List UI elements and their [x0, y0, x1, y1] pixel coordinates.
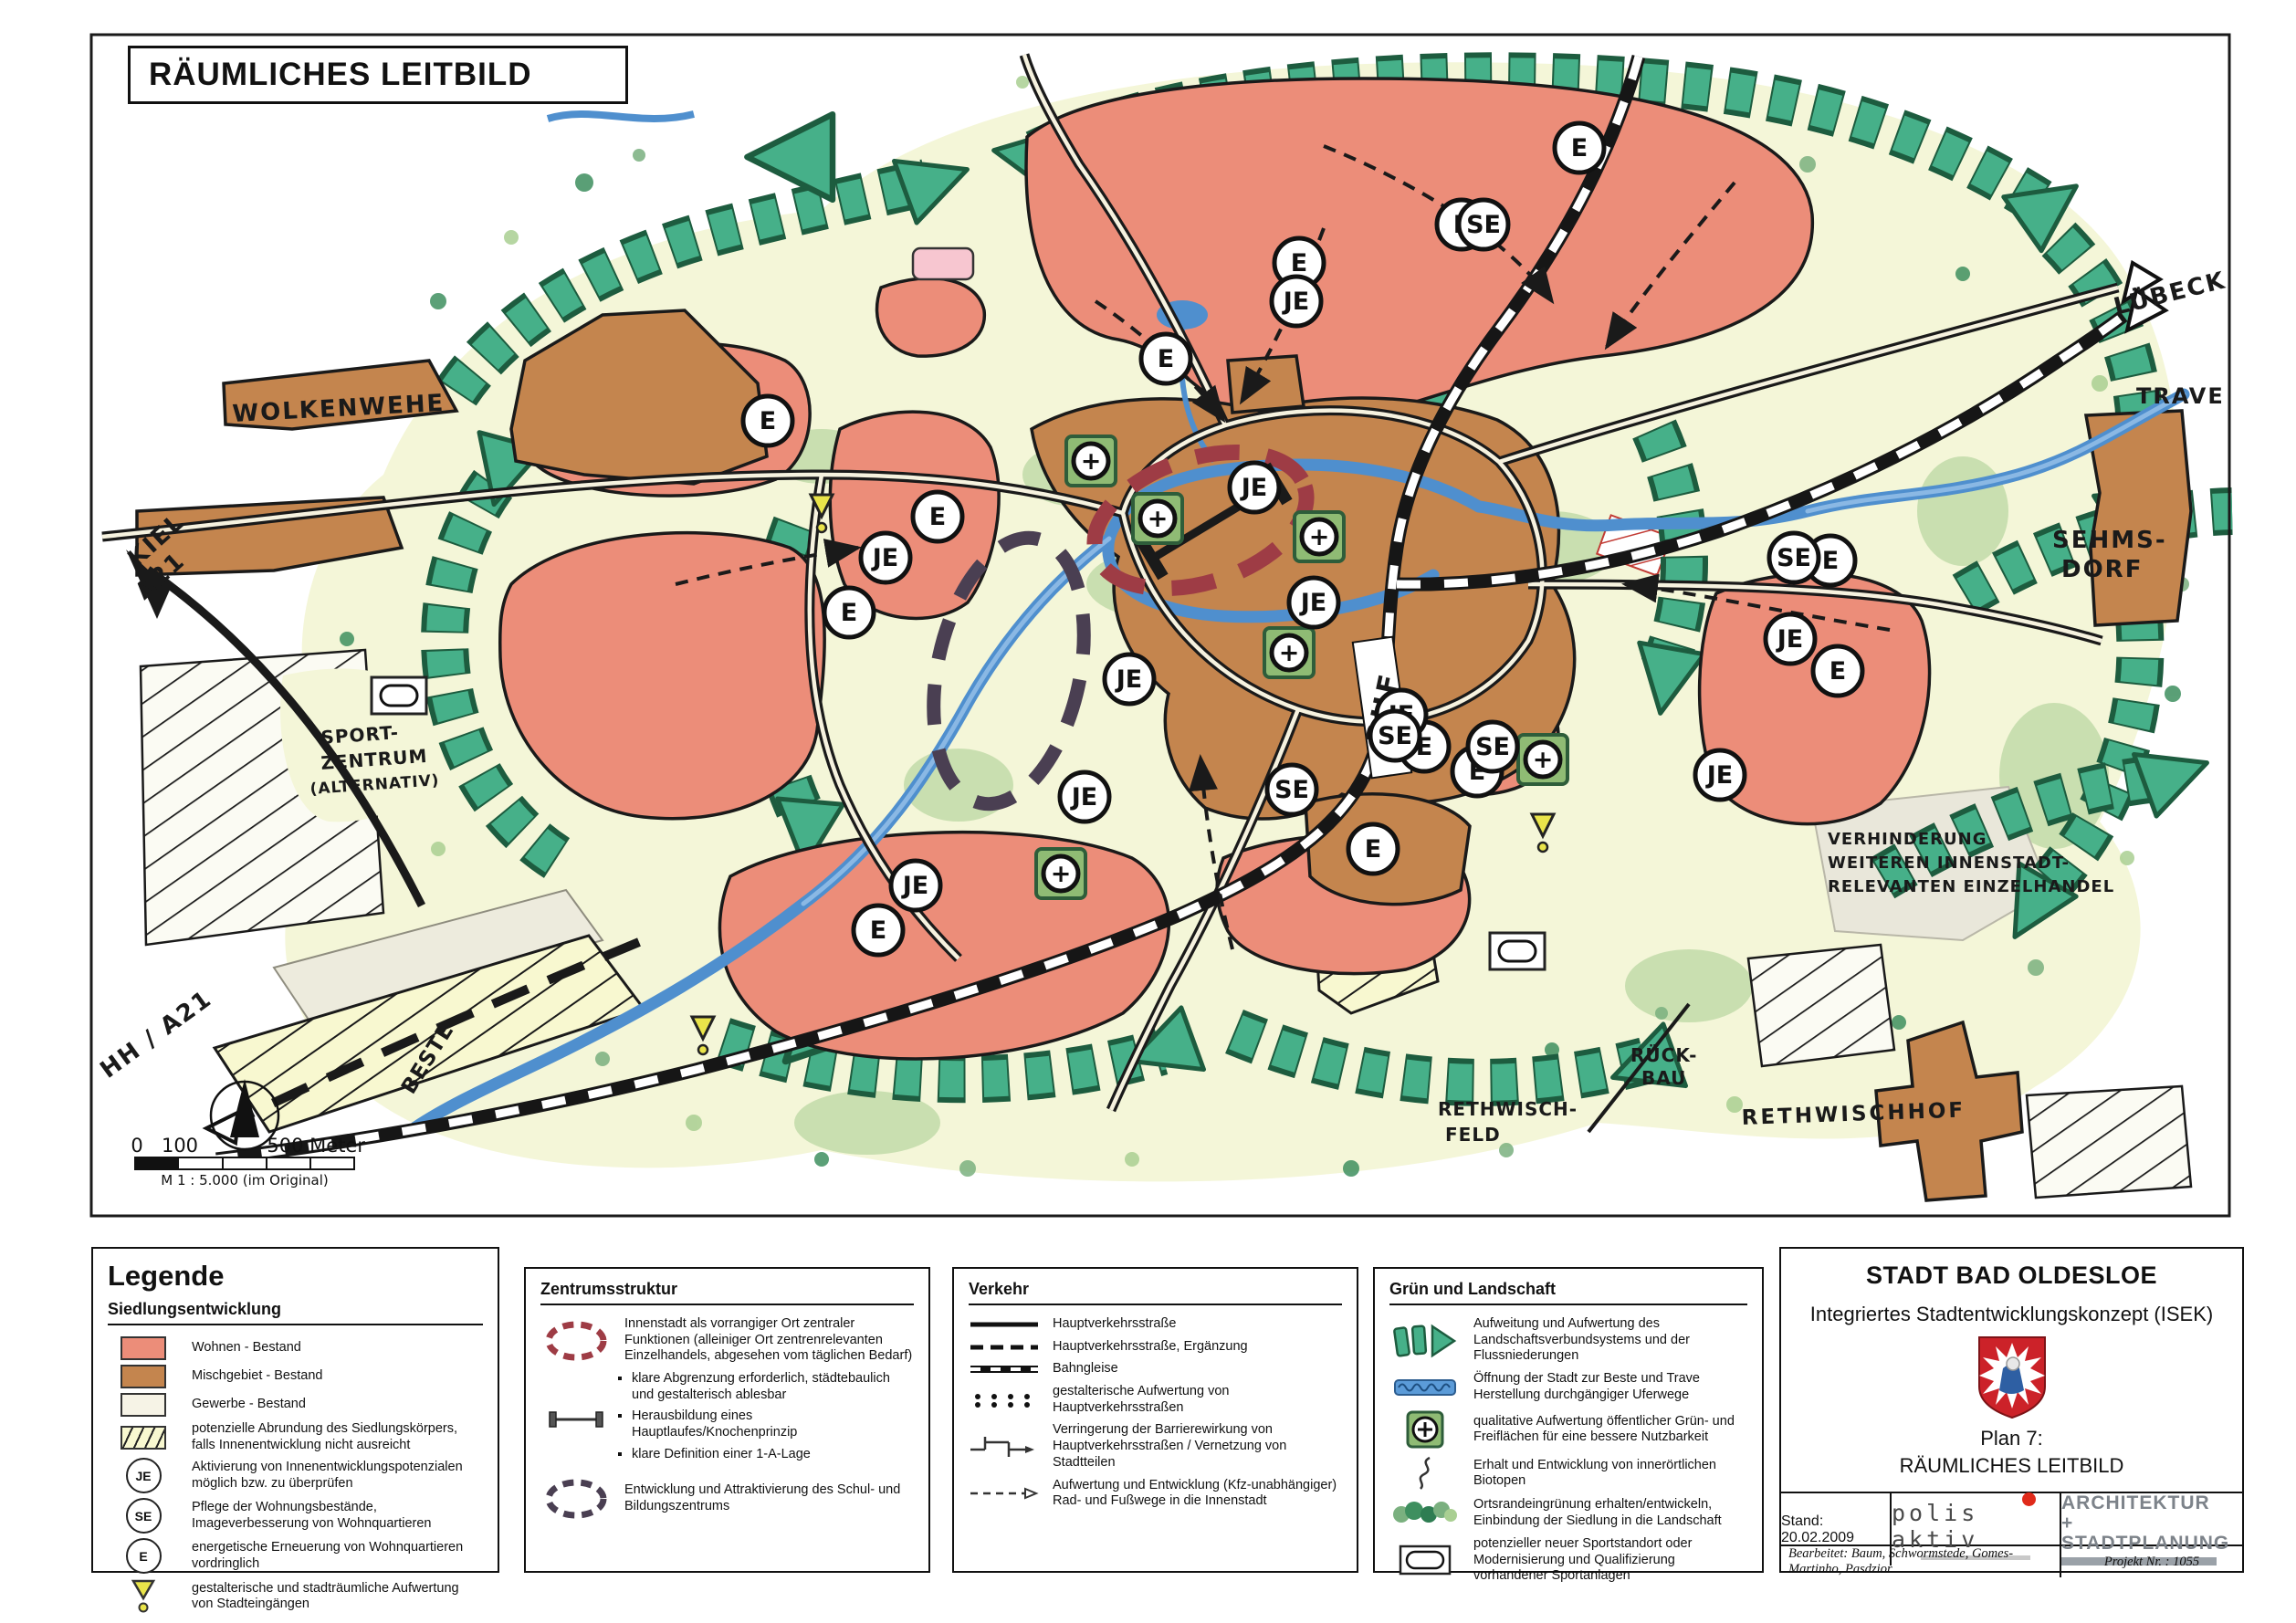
- legend-zentrumsstruktur: Zentrumsstruktur Innenstadt als vorrangi…: [524, 1267, 930, 1573]
- svg-text:E: E: [1365, 835, 1381, 864]
- legend-item-mischgebiet: Mischgebiet - Bestand: [108, 1365, 483, 1388]
- legend-item-e: E energetische Erneuerung von Wohnquarti…: [108, 1538, 483, 1574]
- legend-item-ortsrand: Ortsrandeingrünung erhalten/entwickeln, …: [1389, 1497, 1747, 1529]
- title-block-plan-name: RÄUMLICHES LEITBILD: [1781, 1454, 2242, 1478]
- svg-text:E: E: [929, 503, 946, 531]
- map-label-rethwischfeld-1: RETHWISCH-: [1438, 1098, 1578, 1120]
- legend-item-landschaftsverbund: Aufweitung und Aufwertung des Landschaft…: [1389, 1316, 1747, 1365]
- legend-item-barriere: Verringerung der Barrierewirkung von Hau…: [969, 1422, 1342, 1471]
- knochen-bone-icon: [546, 1409, 606, 1429]
- svg-text:JE: JE: [1705, 761, 1734, 790]
- legend-item-abrundung: potenzielle Abrundung des Siedlungskörpe…: [108, 1421, 483, 1453]
- svg-text:M 1 : 5.000 (im Original): M 1 : 5.000 (im Original): [161, 1172, 329, 1188]
- map-label-rueckbau-2: BAU: [1641, 1067, 1686, 1089]
- legend-heading-verkehr: Verkehr: [969, 1280, 1342, 1305]
- map-label-trave: TRAVE: [2136, 383, 2225, 409]
- city-plan-map: BHF + + + + + +: [0, 0, 2296, 1228]
- je-circle-icon: JE: [126, 1458, 162, 1493]
- polis-red-dot-icon: [2022, 1492, 2036, 1506]
- svg-text:+: +: [1309, 523, 1330, 551]
- svg-text:E: E: [841, 599, 857, 627]
- svg-text:+: +: [1148, 505, 1169, 533]
- biotop-squiggle-icon: [1413, 1456, 1437, 1491]
- svg-text:JE: JE: [871, 544, 899, 572]
- svg-text:SE: SE: [1274, 776, 1309, 804]
- svg-text:E: E: [1158, 345, 1174, 373]
- legend-item-wohnen: Wohnen - Bestand: [108, 1336, 483, 1360]
- svg-text:100: 100: [162, 1135, 198, 1157]
- legend-item-gruenflaechen: qualitative Aufwertung öffentlicher Grün…: [1389, 1409, 1747, 1450]
- svg-text:SE: SE: [1466, 211, 1501, 239]
- svg-text:JE: JE: [1299, 589, 1327, 617]
- svg-text:SE: SE: [1378, 722, 1412, 750]
- map-label-sehmsdorf-1: SEHMS-: [2052, 527, 2167, 554]
- innenstadt-ellipse-icon: [543, 1318, 609, 1364]
- legend-item-bahngleise: Bahngleise: [969, 1361, 1342, 1377]
- svg-text:SE: SE: [1777, 544, 1811, 572]
- hauptstrasse-ergaenzung-line-icon: [969, 1342, 1040, 1353]
- map-label-rethwischfeld-2: FELD: [1445, 1124, 1501, 1146]
- wohnen-swatch-icon: [121, 1336, 166, 1360]
- svg-text:E: E: [760, 407, 776, 435]
- svg-text:SE: SE: [1475, 733, 1510, 761]
- title-block: STADT BAD OLDESLOE Integriertes Stadtent…: [1779, 1247, 2244, 1573]
- bahngleise-line-icon: [969, 1363, 1040, 1376]
- svg-text:E: E: [1829, 657, 1846, 686]
- scale-bar: 0 100 500 Meter M 1 : 5.000 (im Original…: [131, 1135, 365, 1188]
- svg-text:+: +: [1533, 746, 1554, 774]
- gruenflaeche-plus-icon: [1405, 1409, 1445, 1450]
- svg-text:JE: JE: [901, 872, 929, 900]
- title-block-plan-label: Plan 7:: [1781, 1427, 2242, 1450]
- barriere-symbol-icon: [969, 1433, 1040, 1461]
- map-label-luebeck: LÜBECK: [2111, 264, 2229, 320]
- svg-text:+: +: [1279, 639, 1300, 667]
- map-label-hh-a21: HH / A21: [95, 985, 217, 1084]
- legend-verkehr: Verkehr Hauptverkehrsstraße Hauptverkehr…: [952, 1267, 1358, 1573]
- ortsrand-blobs-icon: [1392, 1500, 1458, 1527]
- gewerbe-swatch-icon: [121, 1393, 166, 1417]
- se-circle-icon: SE: [126, 1498, 162, 1534]
- legend-item-je: JE Aktivierung von Innenentwicklungspote…: [108, 1458, 483, 1493]
- svg-text:JE: JE: [1240, 474, 1268, 502]
- bad-oldesloe-crest-icon: [1977, 1335, 2047, 1419]
- legend-innenstadt-bullets: klare Abgrenzung erforderlich, städtebau…: [540, 1371, 914, 1468]
- legend-item-radwege: Aufwertung und Entwicklung (Kfz-unabhäng…: [969, 1478, 1342, 1510]
- e-circle-icon: E: [126, 1538, 162, 1574]
- plan-sheet: BHF + + + + + +: [0, 0, 2296, 1623]
- legend-item-biotope: Erhalt und Entwicklung von innerörtliche…: [1389, 1456, 1747, 1491]
- legend-siedlungsentwicklung: Legende Siedlungsentwicklung Wohnen - Be…: [91, 1247, 499, 1573]
- legend-heading-zentrum: Zentrumsstruktur: [540, 1280, 914, 1305]
- svg-text:E: E: [1291, 249, 1307, 277]
- legend-item-sportstandort: potenzieller neuer Sportstandort oder Mo…: [1389, 1536, 1747, 1585]
- svg-text:JE: JE: [1115, 665, 1143, 694]
- legend-item-schulzentrum: Entwicklung und Attraktivierung des Schu…: [540, 1476, 914, 1522]
- legend-item-uferwege: Öffnung der Stadt zur Beste und Trave He…: [1389, 1371, 1747, 1403]
- title-block-city: STADT BAD OLDESLOE: [1781, 1262, 2242, 1290]
- legend-item-hauptstrasse: Hauptverkehrsstraße: [969, 1316, 1342, 1333]
- legend-heading-siedlung: Siedlungsentwicklung: [108, 1300, 483, 1325]
- map-label-rueckbau-1: RÜCK-: [1630, 1044, 1697, 1066]
- legend-heading-gruen: Grün und Landschaft: [1389, 1280, 1747, 1305]
- page-title: RÄUMLICHES LEITBILD: [128, 46, 628, 104]
- legend-item-aufwertung-strassen: gestalterische Aufwertung von Hauptverke…: [969, 1384, 1342, 1416]
- legend-item-gewerbe: Gewerbe - Bestand: [108, 1393, 483, 1417]
- svg-text:0: 0: [131, 1135, 142, 1157]
- hauptstrasse-line-icon: [969, 1319, 1040, 1330]
- legend-item-se: SE Pflege der Wohnungsbestände, Imagever…: [108, 1498, 483, 1534]
- legend-item-innenstadt: Innenstadt als vorrangiger Ort zentraler…: [540, 1316, 914, 1365]
- schulzentrum-ellipse-icon: [543, 1476, 609, 1522]
- radweg-arrow-icon: [969, 1486, 1040, 1501]
- title-block-projekt-nr: Projekt Nr. : 1055: [2061, 1546, 2242, 1577]
- svg-text:E: E: [1571, 134, 1588, 162]
- stadteingang-triangle-icon: [131, 1578, 156, 1615]
- legend-item-hauptstrasse-erg: Hauptverkehrsstraße, Ergänzung: [969, 1339, 1342, 1356]
- pink-special-area: [913, 248, 973, 279]
- svg-text:JE: JE: [1776, 625, 1804, 654]
- map-label-verhinderung-1: VERHINDERUNG: [1828, 830, 1987, 849]
- svg-text:E: E: [870, 916, 886, 945]
- legend-title: Legende: [108, 1260, 483, 1293]
- mischgebiet-swatch-icon: [121, 1365, 166, 1388]
- map-label-sehmsdorf-2: DORF: [2061, 556, 2143, 583]
- hatch-swatch-icon: [121, 1426, 166, 1450]
- map-label-verhinderung-3: RELEVANTEN EINZELHANDEL: [1828, 877, 2114, 896]
- strassen-dots-icon: [969, 1392, 1040, 1408]
- sportstandort-icon: [1399, 1544, 1452, 1576]
- svg-text:+: +: [1081, 447, 1102, 476]
- svg-text:E: E: [1822, 547, 1839, 575]
- svg-text:+: +: [1051, 860, 1072, 888]
- legend-gruen-landschaft: Grün und Landschaft Aufweitung und Aufwe…: [1373, 1267, 1764, 1573]
- svg-text:JE: JE: [1070, 783, 1098, 811]
- legend-item-stadteingang: gestalterische und stadträumliche Aufwer…: [108, 1578, 483, 1615]
- svg-text:500 Meter: 500 Meter: [267, 1135, 365, 1157]
- landschaftsverbund-icon: [1392, 1321, 1458, 1361]
- title-block-subtitle: Integriertes Stadtentwicklungskonzept (I…: [1781, 1303, 2242, 1326]
- svg-text:JE: JE: [1282, 288, 1310, 316]
- map-label-verhinderung-2: WEITEREN INNENSTADT-: [1828, 853, 2070, 873]
- uferwege-icon: [1393, 1377, 1457, 1398]
